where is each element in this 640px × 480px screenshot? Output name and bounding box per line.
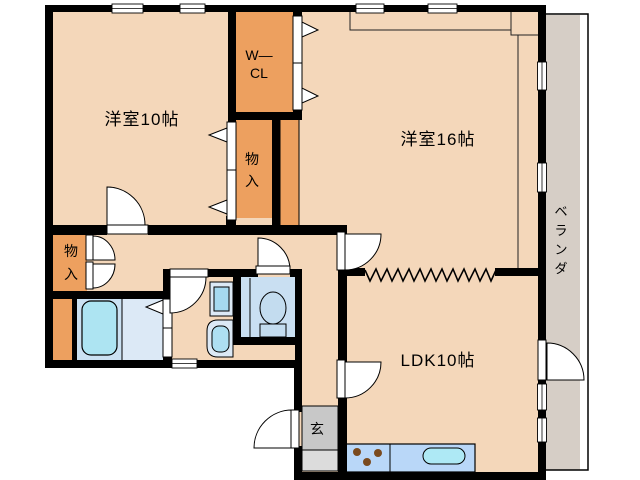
- veranda-label-4: ダ: [554, 261, 567, 276]
- bedroom1-label: 洋室10帖: [105, 110, 180, 129]
- storage-center-label-2: 入: [245, 173, 259, 189]
- bedroom2-label: 洋室16帖: [401, 130, 476, 149]
- entrance-label: 玄: [310, 421, 324, 437]
- stove-burner: [374, 449, 382, 457]
- storage-hall-label-1: 物: [64, 243, 78, 259]
- storage-center-floor: [236, 120, 272, 218]
- stove-burner: [363, 458, 371, 466]
- kitchen-counter: [345, 444, 475, 472]
- veranda-label-3: ン: [554, 242, 567, 257]
- veranda-label-1: ベ: [554, 204, 567, 219]
- kitchen-sink: [423, 448, 465, 464]
- stove-burner: [353, 448, 361, 456]
- wcl-label-line2: CL: [250, 65, 268, 81]
- entrance-area: [302, 406, 338, 471]
- storage-strip-floor: [53, 299, 72, 360]
- floor-plan-svg: 洋室10帖 洋室16帖 LDK10帖 W— CL 物 入 物 入 玄 ベ ラ ン…: [0, 0, 640, 480]
- storage-center-label-1: 物: [245, 151, 259, 167]
- entrance-step-lower: [302, 450, 338, 471]
- bathtub: [82, 301, 117, 355]
- floor-plan-page: 洋室10帖 洋室16帖 LDK10帖 W— CL 物 入 物 入 玄 ベ ラ ン…: [0, 0, 640, 480]
- wcl-label-line1: W—: [245, 47, 272, 63]
- washing-machine-pan: [210, 282, 233, 316]
- storage-secondary-floor: [280, 118, 299, 232]
- washbasin: [207, 320, 233, 357]
- veranda-label-2: ラ: [554, 223, 567, 238]
- ldk-label: LDK10帖: [401, 351, 476, 370]
- toilet: [260, 292, 286, 337]
- storage-hall-label-2: 入: [64, 266, 78, 282]
